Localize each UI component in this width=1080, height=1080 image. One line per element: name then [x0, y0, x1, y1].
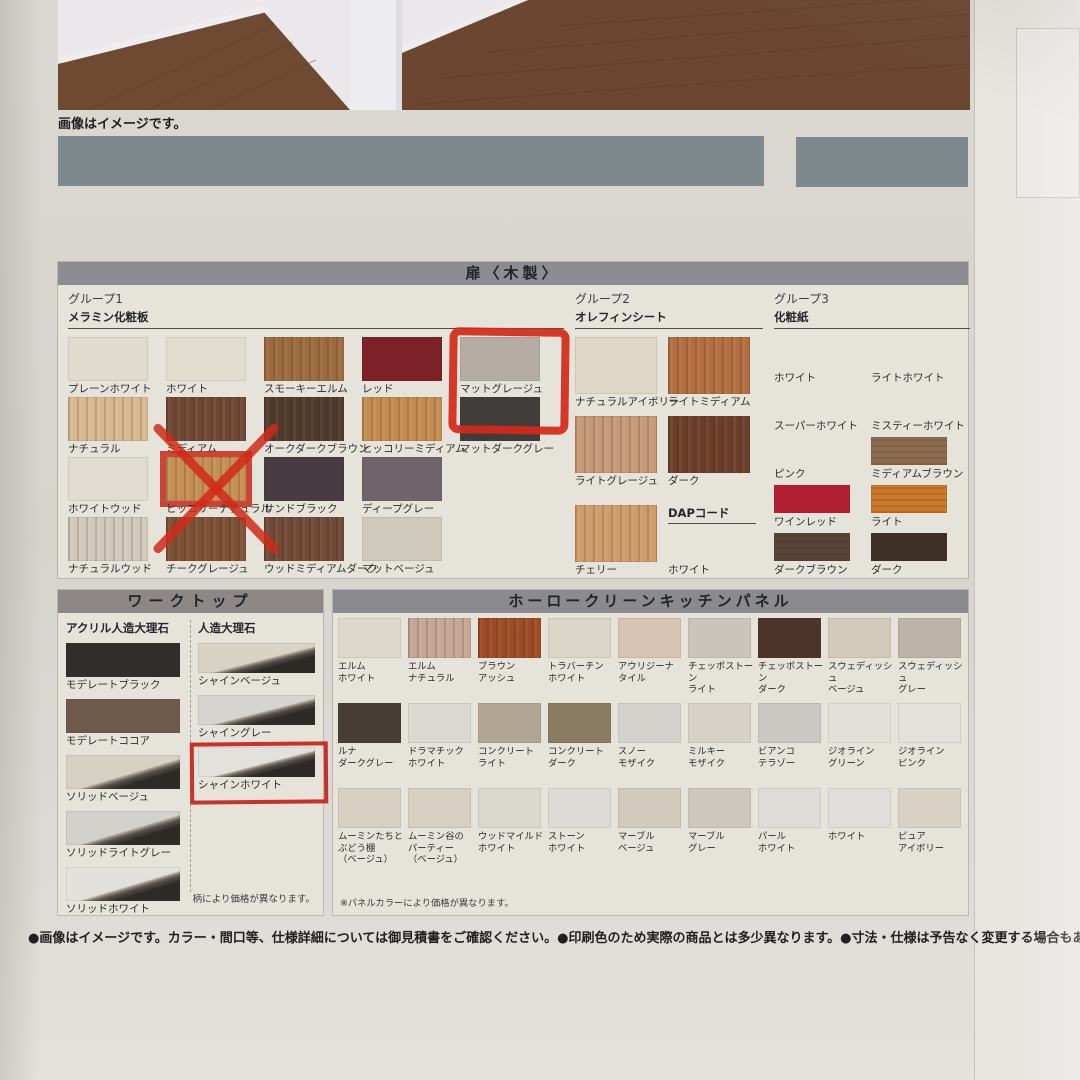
swatch-cell: ライトホワイト [871, 337, 968, 385]
swatch-label: ミルキー モザイク [688, 746, 758, 769]
swatch-cell: ディープグレー [362, 457, 460, 517]
marble-swatch-list: シャインベージュシャイングレーシャインホワイト [198, 643, 318, 799]
color-swatch [688, 618, 751, 658]
swatch-row: ワインレッドライト [774, 481, 970, 529]
swatch-label: ムーミンたちと ぶどう棚 （ベージュ） [338, 831, 408, 866]
redacted-bar-left [58, 136, 764, 186]
color-swatch [68, 517, 148, 561]
swatch-cell: パール ホワイト [758, 788, 828, 873]
swatch-label: ホワイト [828, 831, 898, 843]
swatch-label: ナチュラルアイボリー [575, 396, 668, 409]
swatch-cell: コンクリート ライト [478, 703, 548, 788]
swatch-row: ナチュラルウッドチークグレージュウッドミディアムダークマットベージュ [68, 517, 564, 577]
color-swatch [338, 788, 401, 828]
swatch-cell: ホワイト [828, 788, 898, 873]
swatch-cell: スモーキーエルム [264, 337, 362, 397]
swatch-label: スノー モザイク [618, 746, 688, 769]
swatch-label: オークダークブラウン [264, 443, 362, 456]
color-swatch [618, 788, 681, 828]
swatch-label: チェッポストーン ライト [688, 661, 758, 696]
swatch-cell: ソリッドホワイト [66, 867, 186, 923]
swatch-cell: ピュア アイボリー [898, 788, 968, 873]
swatch-cell: スウェディッシュ グレー [898, 618, 968, 703]
color-swatch [828, 618, 891, 658]
color-swatch [688, 703, 751, 743]
door-group-3: グループ3 化粧紙 ホワイトライトホワイトスーパーホワイトミスティーホワイトピン… [774, 290, 970, 577]
swatch-cell: マットグレージュ [460, 337, 558, 397]
worktop-section: ワークトップ アクリル人造大理石 モデレートブラックモデレートココアソリッドベー… [58, 590, 323, 915]
swatch-row: ダークブラウンダーク [774, 529, 970, 577]
color-swatch [264, 517, 344, 561]
swatch-row: ホワイトウッドヒッコリーナチュラルサンドブラックディープグレー [68, 457, 564, 517]
swatch-cell: ジオライン ピンク [898, 703, 968, 788]
swatch-label: マーブル グレー [688, 831, 758, 854]
color-swatch [66, 755, 180, 789]
group3-swatch-grid: ホワイトライトホワイトスーパーホワイトミスティーホワイトピンクミディアムブラウン… [774, 337, 970, 577]
worktop-section-title: ワークトップ [58, 590, 323, 613]
swatch-label: エルム ホワイト [338, 661, 408, 684]
color-swatch [264, 397, 344, 441]
color-swatch [575, 416, 657, 473]
swatch-cell: コンクリート ダーク [548, 703, 618, 788]
swatch-label: ナチュラルウッド [68, 563, 166, 576]
swatch-cell: ミスティーホワイト [871, 385, 968, 433]
kitchen-panel-section: ホーロークリーンキッチンパネル エルム ホワイトエルム ナチュラルブラウン アッ… [333, 590, 968, 915]
swatch-row: ナチュラルアイボリーライトミディアム [575, 337, 763, 416]
color-swatch [66, 867, 180, 901]
swatch-label: ホワイト [774, 372, 871, 385]
swatch-label: ウッドマイルド ホワイト [478, 831, 548, 854]
swatch-cell: ダーク [668, 416, 761, 495]
swatch-cell: ダークブラウン [774, 529, 871, 577]
swatch-row: チェリーDAPコードホワイト [575, 505, 763, 584]
worktop-marble-column: 人造大理石 シャインベージュシャイングレーシャインホワイト [198, 620, 318, 799]
color-swatch [758, 703, 821, 743]
swatch-cell: ミルキー モザイク [688, 703, 758, 788]
swatch-label: ピンク [774, 468, 871, 481]
color-swatch [166, 337, 246, 381]
catalog-page: 画像はイメージです。 扉〈木製〉 グループ1 メラミン化粧板 プレーンホワイトホ… [0, 0, 1080, 1080]
swatch-cell: マーブル グレー [688, 788, 758, 873]
swatch-label: ドラマチック ホワイト [408, 746, 478, 769]
color-swatch [166, 397, 246, 441]
swatch-cell: モデレートブラック [66, 643, 186, 699]
marble-column-header: 人造大理石 [198, 620, 318, 636]
color-swatch [408, 618, 471, 658]
swatch-label: コンクリート ダーク [548, 746, 618, 769]
swatch-cell: ストーン ホワイト [548, 788, 618, 873]
swatch-cell: ダーク [871, 529, 968, 577]
swatch-label: ウッドミディアムダーク [264, 563, 362, 576]
swatch-cell: ジオライン グリーン [828, 703, 898, 788]
swatch-label: ミスティーホワイト [871, 420, 968, 433]
swatch-cell: ホワイト [774, 337, 871, 385]
photo-caption: 画像はイメージです。 [58, 113, 186, 132]
swatch-cell: ドラマチック ホワイト [408, 703, 478, 788]
swatch-cell: ライトグレージュ [575, 416, 668, 495]
color-swatch [758, 618, 821, 658]
color-swatch [198, 747, 315, 777]
color-swatch [408, 703, 471, 743]
redacted-bar-right [796, 137, 968, 187]
swatch-label: マットダークグレー [460, 443, 558, 456]
swatch-cell: ウッドマイルド ホワイト [478, 788, 548, 873]
fine-print-footer: ●画像はイメージです。カラー・間口等、仕様詳細については御見積書をご確認ください… [28, 927, 1080, 946]
color-swatch [871, 437, 947, 465]
color-swatch [66, 643, 180, 677]
swatch-label: ナチュラル [68, 443, 166, 456]
swatch-label: マーブル ベージュ [618, 831, 688, 854]
group2-swatch-grid: ナチュラルアイボリーライトミディアムライトグレージュダークチェリーDAPコードホ… [575, 337, 763, 584]
color-swatch [898, 788, 961, 828]
swatch-label: ホワイト [668, 564, 761, 577]
swatch-row: エルム ホワイトエルム ナチュラルブラウン アッシュトラバーチン ホワイトアウリ… [338, 618, 968, 703]
swatch-cell: ミディアムブラウン [871, 433, 968, 481]
color-swatch [362, 337, 442, 381]
swatch-cell: レッド [362, 337, 460, 397]
color-swatch [68, 457, 148, 501]
swatch-cell: ヒッコリーナチュラル [166, 457, 264, 517]
group3-name: グループ3 [774, 290, 970, 307]
color-swatch [548, 618, 611, 658]
swatch-label: ワインレッド [774, 516, 871, 529]
swatch-label: ライトホワイト [871, 372, 968, 385]
swatch-label: ジオライン ピンク [898, 746, 968, 769]
color-swatch [774, 533, 850, 561]
color-swatch [668, 528, 750, 562]
swatch-cell: ビアンコ テラゾー [758, 703, 828, 788]
swatch-label: スモーキーエルム [264, 383, 362, 396]
swatch-cell: ホワイトウッド [68, 457, 166, 517]
swatch-row: ライトグレージュダーク [575, 416, 763, 495]
swatch-cell: シャインホワイト [198, 747, 318, 799]
swatch-label: ライトグレージュ [575, 475, 668, 488]
swatch-label: ビアンコ テラゾー [758, 746, 828, 769]
swatch-label: ルナ ダークグレー [338, 746, 408, 769]
swatch-label: レッド [362, 383, 460, 396]
swatch-label: ブラウン アッシュ [478, 661, 548, 684]
swatch-label: ストーン ホワイト [548, 831, 618, 854]
swatch-label: ホワイトウッド [68, 503, 166, 516]
color-swatch [668, 416, 750, 473]
color-swatch [198, 643, 315, 673]
swatch-label: エルム ナチュラル [408, 661, 478, 684]
color-swatch [618, 618, 681, 658]
color-swatch [362, 397, 442, 441]
swatch-cell: シャイングレー [198, 695, 318, 747]
swatch-cell: ホワイト [166, 337, 264, 397]
color-swatch [774, 437, 850, 465]
swatch-label: ダーク [871, 564, 968, 577]
swatch-cell: チェッポストーン ライト [688, 618, 758, 703]
swatch-label: シャイングレー [198, 727, 318, 740]
door-section: 扉〈木製〉 グループ1 メラミン化粧板 プレーンホワイトホワイトスモーキーエルム… [58, 262, 968, 578]
swatch-cell: スーパーホワイト [774, 385, 871, 433]
swatch-label: スーパーホワイト [774, 420, 871, 433]
swatch-label: ソリッドライトグレー [66, 847, 186, 860]
swatch-label: ダークブラウン [774, 564, 871, 577]
color-swatch [408, 788, 471, 828]
swatch-label: チェリー [575, 564, 668, 577]
dap-code-subheader: DAPコード [668, 505, 756, 524]
color-swatch [774, 485, 850, 513]
color-swatch [548, 788, 611, 828]
color-swatch [898, 618, 961, 658]
swatch-label: サンドブラック [264, 503, 362, 516]
color-swatch [575, 505, 657, 562]
swatch-row: ピンクミディアムブラウン [774, 433, 970, 481]
swatch-cell: マットベージュ [362, 517, 460, 577]
swatch-label: ソリッドホワイト [66, 903, 186, 916]
swatch-cell: マーブル ベージュ [618, 788, 688, 873]
swatch-label: チークグレージュ [166, 563, 264, 576]
color-swatch [871, 533, 947, 561]
color-swatch [828, 788, 891, 828]
swatch-cell: ワインレッド [774, 481, 871, 529]
swatch-cell: DAPコードホワイト [668, 505, 761, 584]
door-group-1: グループ1 メラミン化粧板 プレーンホワイトホワイトスモーキーエルムレッドマット… [68, 290, 564, 577]
swatch-label: マットベージュ [362, 563, 460, 576]
kitchen-panel-price-note: ※パネルカラーにより価格が異なります。 [340, 895, 514, 909]
color-swatch [338, 618, 401, 658]
color-swatch [618, 703, 681, 743]
door-section-title: 扉〈木製〉 [58, 262, 968, 285]
swatch-label: アウリジーナ タイル [618, 661, 688, 684]
color-swatch [362, 457, 442, 501]
swatch-cell: アウリジーナ タイル [618, 618, 688, 703]
swatch-row: スーパーホワイトミスティーホワイト [774, 385, 970, 433]
worktop-price-note: 柄により価格が異なります。 [193, 891, 315, 905]
swatch-cell: ナチュラル [68, 397, 166, 457]
top-right-empty-box [1016, 28, 1080, 198]
color-swatch [774, 389, 850, 417]
color-swatch [828, 703, 891, 743]
color-swatch [871, 485, 947, 513]
color-swatch [68, 397, 148, 441]
swatch-label: ヒッコリーナチュラル [166, 503, 264, 516]
swatch-cell: プレーンホワイト [68, 337, 166, 397]
swatch-cell: ムーミンたちと ぶどう棚 （ベージュ） [338, 788, 408, 873]
swatch-label: ディープグレー [362, 503, 460, 516]
swatch-label: シャインベージュ [198, 675, 318, 688]
swatch-cell: サンドブラック [264, 457, 362, 517]
swatch-row: ルナ ダークグレードラマチック ホワイトコンクリート ライトコンクリート ダーク… [338, 703, 968, 788]
color-swatch [66, 811, 180, 845]
swatch-cell: ソリッドベージュ [66, 755, 186, 811]
acrylic-column-header: アクリル人造大理石 [66, 620, 186, 636]
kitchen-panel-swatch-grid: エルム ホワイトエルム ナチュラルブラウン アッシュトラバーチン ホワイトアウリ… [338, 618, 968, 873]
color-swatch [758, 788, 821, 828]
color-swatch [166, 457, 246, 501]
group1-swatch-grid: プレーンホワイトホワイトスモーキーエルムレッドマットグレージュナチュラルミディア… [68, 337, 564, 577]
swatch-cell: エルム ホワイト [338, 618, 408, 703]
swatch-row: プレーンホワイトホワイトスモーキーエルムレッドマットグレージュ [68, 337, 564, 397]
color-swatch [774, 341, 850, 369]
group2-name: グループ2 [575, 290, 763, 307]
swatch-label: ダーク [668, 475, 761, 488]
swatch-label: ピュア アイボリー [898, 831, 968, 854]
swatch-cell: ムーミン谷の パーティー （ベージュ） [408, 788, 478, 873]
color-swatch [548, 703, 611, 743]
swatch-label: ライト [871, 516, 968, 529]
color-swatch [898, 703, 961, 743]
swatch-cell: ナチュラルアイボリー [575, 337, 668, 416]
swatch-label: スウェディッシュ グレー [898, 661, 968, 696]
swatch-row: ムーミンたちと ぶどう棚 （ベージュ）ムーミン谷の パーティー （ベージュ）ウッ… [338, 788, 968, 873]
color-swatch [66, 699, 180, 733]
swatch-cell: チェッポストーン ダーク [758, 618, 828, 703]
swatch-cell: スウェディッシュ ベージュ [828, 618, 898, 703]
swatch-label: ムーミン谷の パーティー （ベージュ） [408, 831, 478, 866]
swatch-label: モデレートブラック [66, 679, 186, 692]
color-swatch [68, 337, 148, 381]
swatch-cell: スノー モザイク [618, 703, 688, 788]
color-swatch [338, 703, 401, 743]
swatch-cell: シャインベージュ [198, 643, 318, 695]
swatch-label: ヒッコリーミディアム [362, 443, 460, 456]
worktop-acrylic-column: アクリル人造大理石 モデレートブラックモデレートココアソリッドベージュソリッドラ… [66, 620, 186, 923]
swatch-label: ホワイト [166, 383, 264, 396]
swatch-label: ミディアムブラウン [871, 468, 968, 481]
swatch-label: ソリッドベージュ [66, 791, 186, 804]
swatch-cell: ライトミディアム [668, 337, 761, 416]
color-swatch [478, 703, 541, 743]
swatch-label: ライトミディアム [668, 396, 761, 409]
color-swatch [668, 337, 750, 394]
color-swatch [264, 337, 344, 381]
swatch-cell: ブラウン アッシュ [478, 618, 548, 703]
swatch-label: パール ホワイト [758, 831, 828, 854]
group3-material: 化粧紙 [774, 309, 970, 329]
door-group-2: グループ2 オレフィンシート ナチュラルアイボリーライトミディアムライトグレージ… [575, 290, 763, 584]
swatch-label: プレーンホワイト [68, 383, 166, 396]
color-swatch [688, 788, 751, 828]
swatch-cell: ソリッドライトグレー [66, 811, 186, 867]
swatch-cell: ヒッコリーミディアム [362, 397, 460, 457]
swatch-cell: ルナ ダークグレー [338, 703, 408, 788]
color-swatch [871, 341, 947, 369]
swatch-label: ジオライン グリーン [828, 746, 898, 769]
swatch-cell: ピンク [774, 433, 871, 481]
swatch-cell: エルム ナチュラル [408, 618, 478, 703]
group1-name: グループ1 [68, 290, 564, 307]
swatch-cell: モデレートココア [66, 699, 186, 755]
swatch-label: チェッポストーン ダーク [758, 661, 828, 696]
color-swatch [871, 389, 947, 417]
swatch-label: マットグレージュ [460, 383, 558, 396]
swatch-cell: ナチュラルウッド [68, 517, 166, 577]
color-swatch [478, 788, 541, 828]
swatch-label: コンクリート ライト [478, 746, 548, 769]
group2-material: オレフィンシート [575, 309, 763, 329]
swatch-label: スウェディッシュ ベージュ [828, 661, 898, 696]
swatch-row: ホワイトライトホワイト [774, 337, 970, 385]
kitchen-panel-title: ホーロークリーンキッチンパネル [333, 590, 968, 613]
swatch-label: モデレートココア [66, 735, 186, 748]
swatch-cell: トラバーチン ホワイト [548, 618, 618, 703]
group1-material: メラミン化粧板 [68, 309, 564, 329]
color-swatch [198, 695, 315, 725]
color-swatch [478, 618, 541, 658]
swatch-cell: ライト [871, 481, 968, 529]
swatch-cell: チェリー [575, 505, 668, 584]
swatch-label: トラバーチン ホワイト [548, 661, 618, 684]
color-swatch [362, 517, 442, 561]
color-swatch [460, 337, 540, 381]
room-photo [58, 0, 970, 110]
acrylic-swatch-list: モデレートブラックモデレートココアソリッドベージュソリッドライトグレーソリッドホ… [66, 643, 186, 923]
color-swatch [575, 337, 657, 394]
swatch-label: シャインホワイト [198, 779, 318, 792]
color-swatch [264, 457, 344, 501]
